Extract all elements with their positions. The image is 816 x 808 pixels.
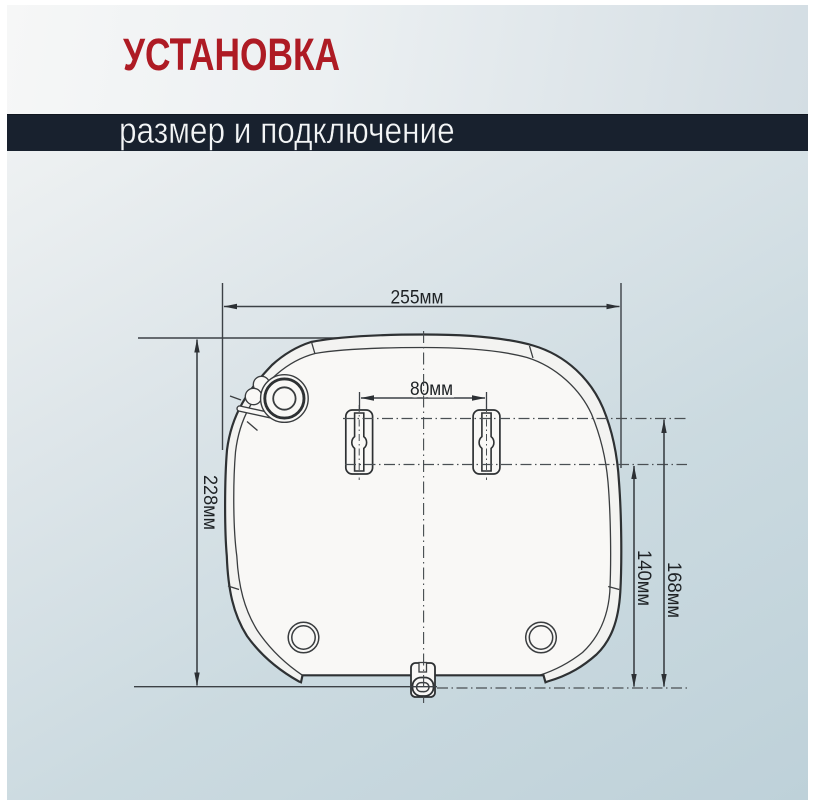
svg-text:255мм: 255мм	[391, 287, 444, 309]
svg-text:80мм: 80мм	[410, 378, 453, 400]
svg-text:168мм: 168мм	[663, 562, 685, 618]
svg-text:140мм: 140мм	[633, 550, 655, 606]
svg-text:228мм: 228мм	[199, 475, 221, 530]
